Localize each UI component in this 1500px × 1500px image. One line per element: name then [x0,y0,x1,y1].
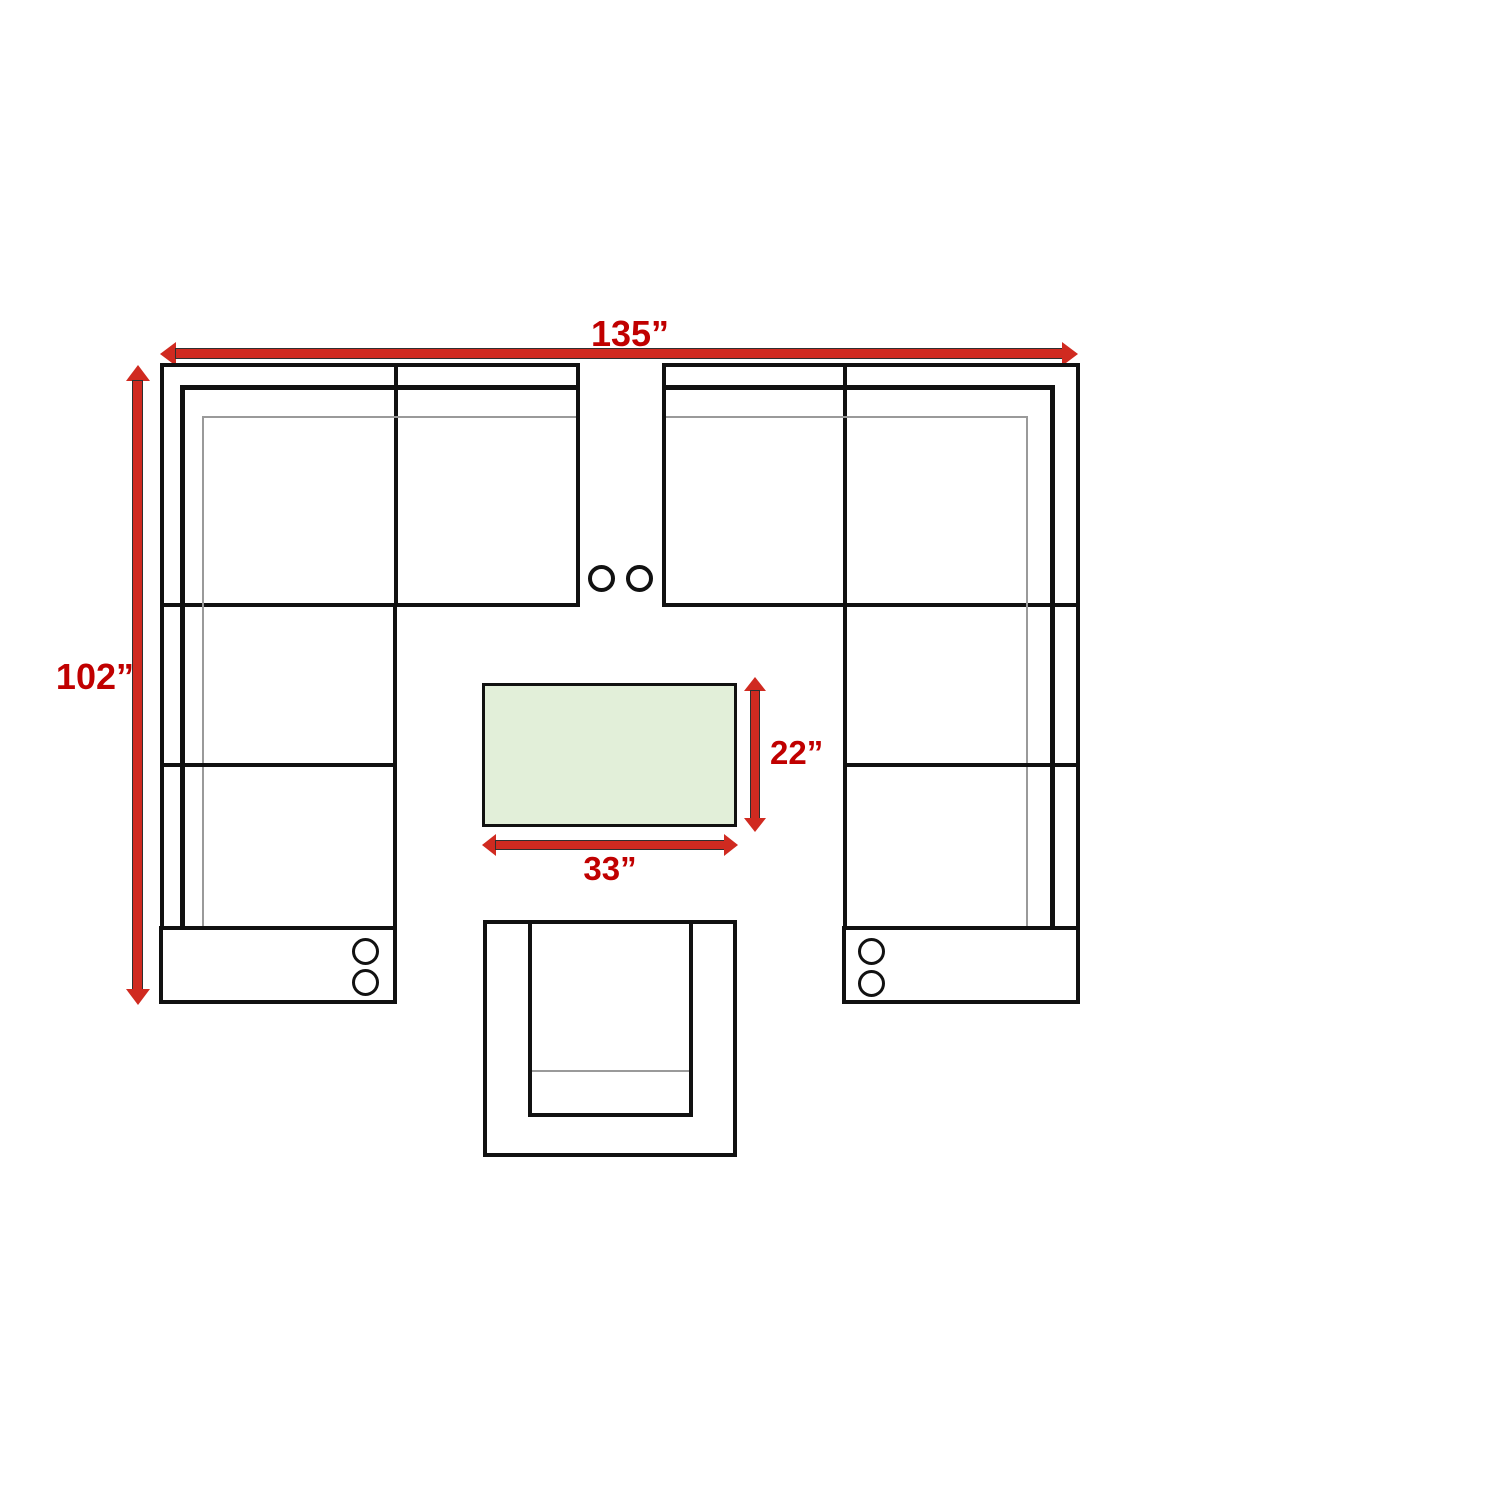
right-chaise-outline [843,607,1080,928]
arrow-up-head-icon [744,677,766,691]
arrow-right-head-icon [724,834,738,856]
cupholder-icon [858,970,885,997]
arrow-down-head-icon [744,818,766,832]
cupholder-icon [352,969,379,996]
table-depth-arrow [750,690,760,819]
overall-depth-arrow [132,380,143,990]
overall-depth-label: 102” [38,659,134,695]
cupholder-icon [588,565,615,592]
left-chaise-outline [160,607,397,928]
sofa-back-line-right [664,385,1055,390]
cupholder-icon [858,938,885,965]
left-chaise-seat-divider [160,763,397,767]
coffee-table [482,683,737,827]
overall-width-label: 135” [560,316,700,352]
overall-width-arrow [175,348,1063,359]
table-width-label: 33” [575,852,645,885]
table-depth-label: 22” [770,736,823,769]
right-chaise-seat-divider [843,763,1080,767]
sofa-cushion-line-right [664,416,1028,418]
arrow-down-head-icon [126,989,150,1005]
sofa-seat-divider-right [843,363,847,607]
table-width-arrow [495,840,725,850]
furniture-layout-diagram: 135” 102” 22” 33” [0,0,1500,1500]
sofa-cushion-line-left [202,416,578,418]
armchair-seat-front-line [532,1070,689,1072]
arrow-up-head-icon [126,365,150,381]
arrow-left-head-icon [482,834,496,856]
sofa-back-line-left [180,385,578,390]
cupholder-icon [352,938,379,965]
armchair-seat [528,920,693,1117]
cupholder-icon [626,565,653,592]
sofa-seat-divider-left [394,363,398,607]
